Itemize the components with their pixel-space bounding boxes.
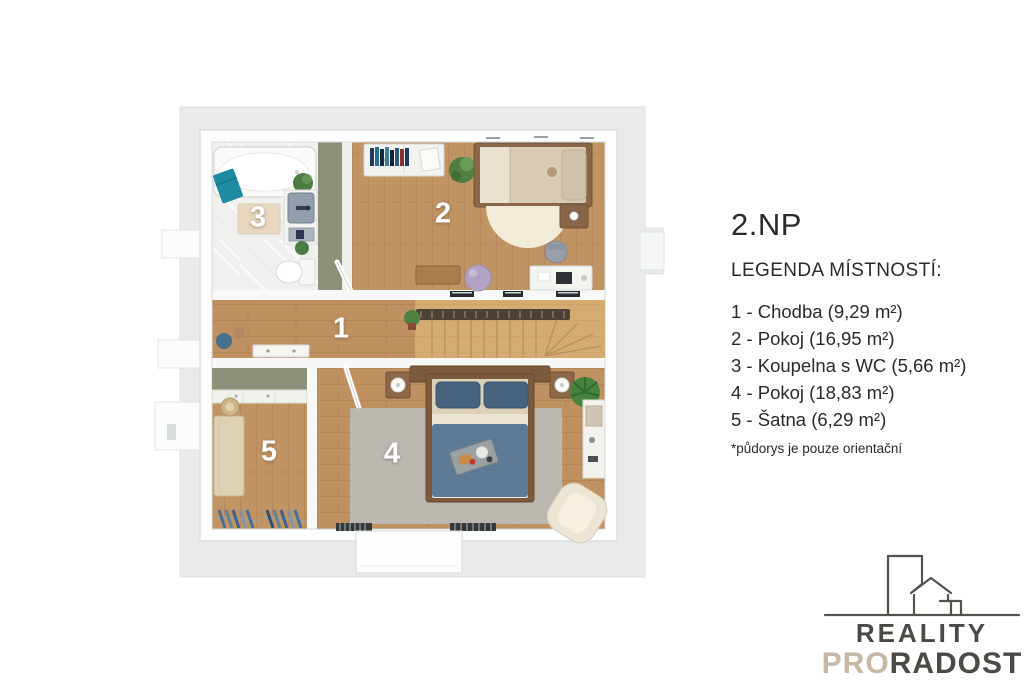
radiator bbox=[336, 523, 372, 531]
basket bbox=[216, 333, 232, 349]
legend-panel: 2.NP LEGENDA MÍSTNOSTÍ: 1 - Chodba (9,29… bbox=[731, 207, 1001, 456]
room-label-bathroom: 3 bbox=[250, 204, 266, 233]
legend-subtitle: LEGENDA MÍSTNOSTÍ: bbox=[731, 260, 1001, 282]
logo-reality: REALITY bbox=[820, 620, 1024, 647]
toilet bbox=[276, 259, 315, 285]
plant-icon bbox=[295, 241, 309, 255]
room-label-bedroom4: 4 bbox=[384, 440, 400, 469]
legend-footnote: *půdorys je pouze orientační bbox=[731, 441, 1001, 456]
room-label-wardrobe: 5 bbox=[261, 438, 277, 467]
skyline-icon bbox=[822, 551, 1022, 619]
page: 1 2 3 4 5 2.NP LEGENDA MÍSTNOSTÍ: 1 - Ch… bbox=[0, 0, 1024, 682]
floor-title: 2.NP bbox=[731, 207, 1001, 243]
room-label-hallway: 1 bbox=[333, 315, 349, 344]
pillow bbox=[562, 150, 586, 200]
radiator bbox=[450, 523, 496, 531]
nightstand bbox=[560, 204, 588, 228]
console-table bbox=[583, 400, 605, 478]
legend-item: 1 - Chodba (9,29 m²) bbox=[731, 298, 1001, 325]
dresser bbox=[364, 144, 444, 176]
side-table bbox=[416, 266, 460, 284]
legend-item: 2 - Pokoj (16,95 m²) bbox=[731, 325, 1001, 352]
plant-icon bbox=[449, 157, 475, 183]
bench bbox=[214, 416, 244, 496]
wall-room5-room4 bbox=[307, 368, 317, 529]
wall-vents bbox=[450, 291, 580, 297]
basket bbox=[233, 327, 245, 339]
dormer-window bbox=[356, 531, 462, 573]
legend-item: 5 - Šatna (6,29 m²) bbox=[731, 406, 1001, 433]
closet-side bbox=[342, 142, 352, 290]
single-bed bbox=[474, 143, 592, 207]
pillow bbox=[436, 382, 480, 408]
logo-radost: RADOST bbox=[890, 647, 1023, 680]
exercise-ball bbox=[465, 265, 491, 291]
hall-console bbox=[253, 345, 309, 357]
logo-pro: PRO bbox=[822, 647, 890, 680]
closet-shelf bbox=[212, 368, 307, 390]
teddy-icon bbox=[547, 167, 557, 177]
agency-logo: REALITY PRORADOST bbox=[820, 551, 1024, 680]
nightstand bbox=[386, 372, 410, 398]
pillow bbox=[484, 382, 528, 408]
double-bed bbox=[426, 374, 534, 502]
legend-item: 4 - Pokoj (18,83 m²) bbox=[731, 379, 1001, 406]
wall-hall-top bbox=[212, 290, 605, 300]
legend-item: 3 - Koupelna s WC (5,66 m²) bbox=[731, 352, 1001, 379]
logo-proradost: PRORADOST bbox=[820, 648, 1024, 680]
stair-railing bbox=[416, 309, 570, 320]
room-label-bedroom2: 2 bbox=[435, 200, 451, 229]
legend-items: 1 - Chodba (9,29 m²) 2 - Pokoj (16,95 m²… bbox=[731, 298, 1001, 433]
